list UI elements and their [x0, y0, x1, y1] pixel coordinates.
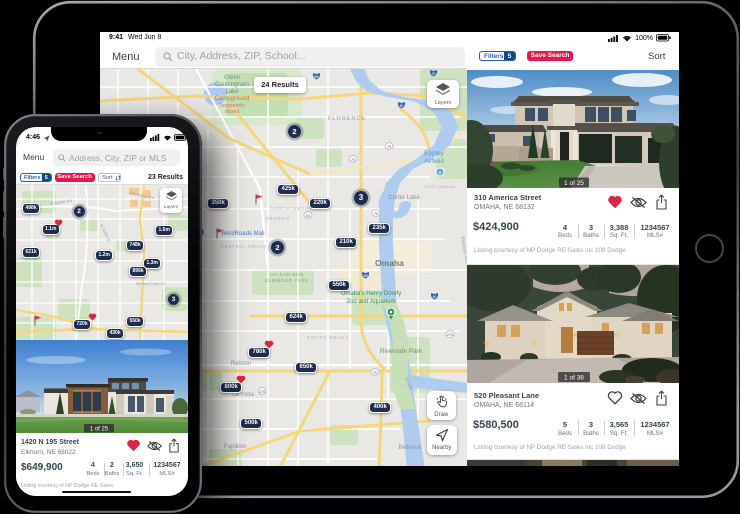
svg-text:1 of 25: 1 of 25: [90, 427, 109, 433]
svg-text:Mineral Point Rd: Mineral Point Rd: [136, 281, 166, 286]
